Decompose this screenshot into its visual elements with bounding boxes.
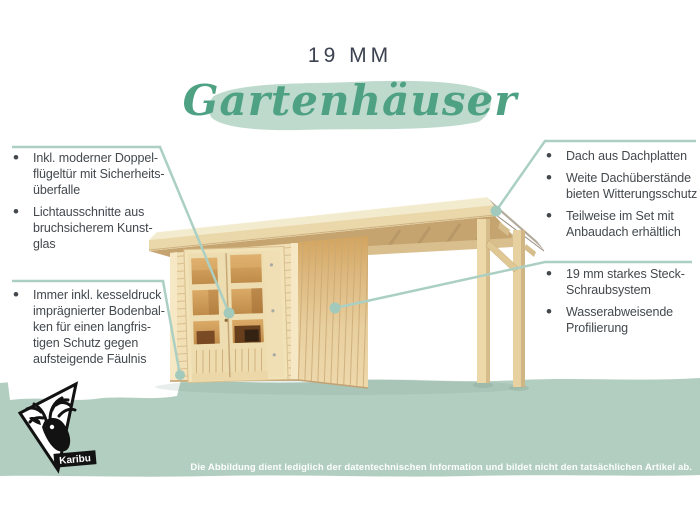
- bullet-icon: •: [13, 150, 33, 166]
- garden-house: [149, 197, 544, 388]
- connector-dot-wall: [330, 303, 341, 314]
- feature-item-profile: • Wasserabweisende Profilierung: [546, 304, 700, 336]
- feature-item-overhang: • Weite Dachüberstände bieten Witterungs…: [546, 170, 700, 202]
- feature-text: Wasserabweisende Profilierung: [566, 304, 673, 336]
- feature-block-right-top: • Dach aus Dachplatten • Weite Dachübers…: [546, 148, 700, 246]
- connector-dot-roof: [491, 206, 502, 217]
- feature-item-anbaudach: • Teilweise im Set mit Anbaudach erhältl…: [546, 208, 700, 240]
- feature-item-wall-system: • 19 mm starkes Steck- Schraubsystem: [546, 266, 700, 298]
- bullet-icon: •: [546, 148, 566, 164]
- feature-item-roof: • Dach aus Dachplatten: [546, 148, 700, 164]
- bullet-icon: •: [546, 266, 566, 282]
- bullet-icon: •: [546, 304, 566, 320]
- connector-dot-door: [224, 308, 235, 319]
- feature-item-foundation: • Immer inkl. kesseldruck imprägnierter …: [13, 287, 203, 367]
- feature-item-door: • Inkl. moderner Doppel- flügeltür mit S…: [13, 150, 203, 198]
- bullet-icon: •: [546, 170, 566, 186]
- title-size-label: 19 MM: [0, 44, 700, 68]
- feature-text: 19 mm starkes Steck- Schraubsystem: [566, 266, 685, 298]
- feature-text: Dach aus Dachplatten: [566, 148, 687, 164]
- feature-text: Immer inkl. kesseldruck imprägnierter Bo…: [33, 287, 165, 367]
- feature-text: Lichtausschnitte aus bruchsicherem Kunst…: [33, 204, 153, 252]
- feature-item-glass: • Lichtausschnitte aus bruchsicherem Kun…: [13, 204, 203, 252]
- image-disclaimer: Die Abbildung dient lediglich der datent…: [190, 462, 692, 473]
- corner-trim-right: [291, 243, 298, 380]
- feature-text: Weite Dachüberstände bieten Witterungssc…: [566, 170, 697, 202]
- bullet-icon: •: [13, 287, 33, 303]
- feature-text: Teilweise im Set mit Anbaudach erhältlic…: [566, 208, 681, 240]
- title-category-label: Gartenhäuser: [0, 76, 700, 125]
- feature-text: Inkl. moderner Doppel- flügeltür mit Sic…: [33, 150, 164, 198]
- bullet-icon: •: [13, 204, 33, 220]
- feature-block-left-top: • Inkl. moderner Doppel- flügeltür mit S…: [13, 150, 203, 258]
- feature-block-right-bottom: • 19 mm starkes Steck- Schraubsystem • W…: [546, 266, 700, 342]
- bullet-icon: •: [546, 208, 566, 224]
- feature-block-left-bottom: • Immer inkl. kesseldruck imprägnierter …: [13, 287, 203, 373]
